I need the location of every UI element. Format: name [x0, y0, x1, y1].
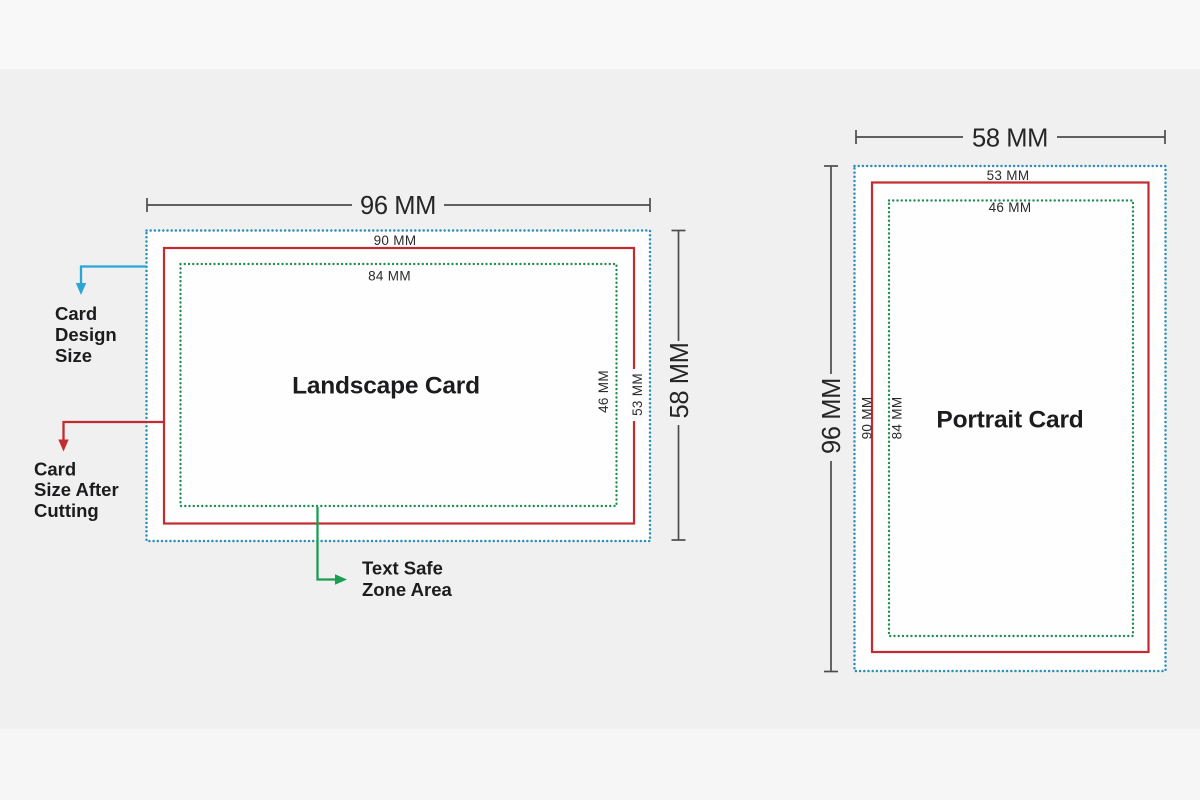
- svg-text:Portrait Card: Portrait Card: [936, 407, 1083, 434]
- svg-text:46 MM: 46 MM: [989, 200, 1032, 215]
- svg-text:Size: Size: [55, 345, 92, 366]
- svg-text:53 MM: 53 MM: [630, 373, 645, 416]
- svg-text:84 MM: 84 MM: [368, 269, 411, 284]
- svg-text:96 MM: 96 MM: [818, 378, 846, 454]
- svg-text:Card: Card: [55, 303, 97, 324]
- svg-text:84 MM: 84 MM: [890, 397, 905, 440]
- svg-text:Size After: Size After: [34, 479, 119, 500]
- svg-text:Design: Design: [55, 324, 117, 345]
- svg-text:58 MM: 58 MM: [666, 343, 694, 419]
- svg-text:90 MM: 90 MM: [374, 233, 417, 248]
- svg-text:Text Safe: Text Safe: [362, 558, 443, 579]
- svg-text:Landscape Card: Landscape Card: [292, 373, 480, 400]
- svg-text:90 MM: 90 MM: [860, 397, 875, 440]
- svg-text:Card: Card: [34, 459, 76, 480]
- svg-text:96 MM: 96 MM: [360, 192, 436, 220]
- svg-text:46 MM: 46 MM: [596, 370, 611, 413]
- svg-text:Cutting: Cutting: [34, 500, 99, 521]
- svg-text:53 MM: 53 MM: [987, 168, 1030, 183]
- svg-text:58 MM: 58 MM: [972, 125, 1048, 153]
- svg-text:Zone Area: Zone Area: [362, 579, 452, 600]
